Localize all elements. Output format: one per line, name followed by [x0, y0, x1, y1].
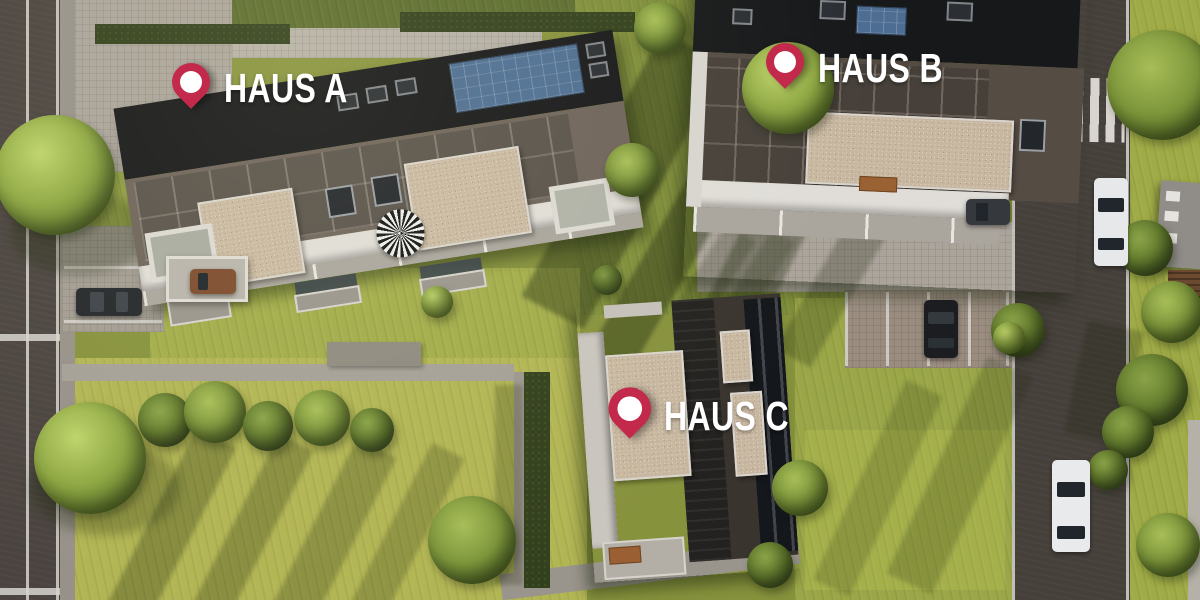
- road-left-stop-line: [0, 334, 60, 341]
- bush: [772, 460, 828, 516]
- car-rust: [190, 269, 236, 294]
- round-bush: [421, 286, 453, 318]
- shrub: [294, 390, 350, 446]
- map-pin-icon: [168, 60, 214, 118]
- retaining-wall: [327, 342, 421, 366]
- haus-c-label: HAUS C: [664, 396, 789, 437]
- large-tree: [34, 402, 146, 514]
- haus-a-label: HAUS A: [224, 68, 348, 109]
- haus-c-wood-bench: [608, 546, 641, 565]
- roof-hatch: [819, 0, 846, 20]
- hedge-top-2: [400, 12, 635, 32]
- bush: [747, 542, 793, 588]
- roof-hatch: [946, 2, 973, 22]
- pin-dot: [180, 71, 202, 93]
- bush: [993, 322, 1025, 354]
- haus-c-gravel-roof: [720, 329, 754, 383]
- tree: [428, 496, 516, 584]
- haus-c-top-edge: [604, 301, 663, 318]
- hedge-top-1: [95, 24, 290, 44]
- small-bush: [592, 265, 622, 295]
- haus-c-marker[interactable]: HAUS C: [604, 384, 834, 448]
- neighbor-dormer: [1164, 211, 1179, 222]
- haus-a-end-terrace: [549, 178, 616, 235]
- haus-a-marker[interactable]: HAUS A: [168, 60, 398, 120]
- aerial-site-plan: HAUS A HAUS B HAUS C: [0, 0, 1200, 600]
- roadside-tree: [1136, 513, 1200, 577]
- neighbor-dormer: [1166, 191, 1181, 202]
- tree: [634, 2, 686, 54]
- large-tree: [0, 115, 115, 235]
- haus-a-skylight: [325, 184, 357, 218]
- car-black-parking-bay: [924, 300, 958, 358]
- garden-fence: [1188, 420, 1200, 600]
- haus-b-solar-panel-blue: [856, 6, 907, 36]
- haus-b-wood-deck: [859, 176, 898, 193]
- hedge-haus-c: [524, 372, 550, 588]
- haus-b-gravel-roof: [805, 112, 1014, 193]
- car-dark-parked-left: [76, 288, 142, 316]
- shrub: [350, 408, 394, 452]
- pin-dot: [617, 396, 642, 421]
- roadside-tree: [1088, 450, 1128, 490]
- map-pin-icon: [604, 384, 656, 449]
- roadside-tree: [1141, 281, 1200, 343]
- roof-hatch: [732, 8, 753, 25]
- road-left-lane-line: [26, 0, 29, 600]
- bay-line: [968, 292, 971, 366]
- shrub: [184, 381, 246, 443]
- roof-hatch: [588, 61, 609, 79]
- parking-line: [64, 320, 162, 323]
- haus-b-label: HAUS B: [818, 48, 943, 89]
- haus-a-skylight: [370, 173, 402, 207]
- haus-b-marker[interactable]: HAUS B: [762, 40, 992, 100]
- shrub: [138, 393, 192, 447]
- round-tree: [605, 143, 659, 197]
- car-white-driving: [1052, 460, 1090, 552]
- car-dark-haus-b: [966, 199, 1010, 225]
- roof-hatch: [585, 41, 606, 59]
- map-pin-icon: [762, 40, 808, 98]
- pin-dot: [774, 51, 796, 73]
- haus-b-skylight: [1019, 119, 1046, 152]
- road-left-stop-line: [0, 588, 60, 595]
- shrub: [243, 401, 293, 451]
- walkway-left: [62, 364, 514, 381]
- car-white-parked: [1094, 178, 1128, 266]
- bay-line: [886, 292, 889, 366]
